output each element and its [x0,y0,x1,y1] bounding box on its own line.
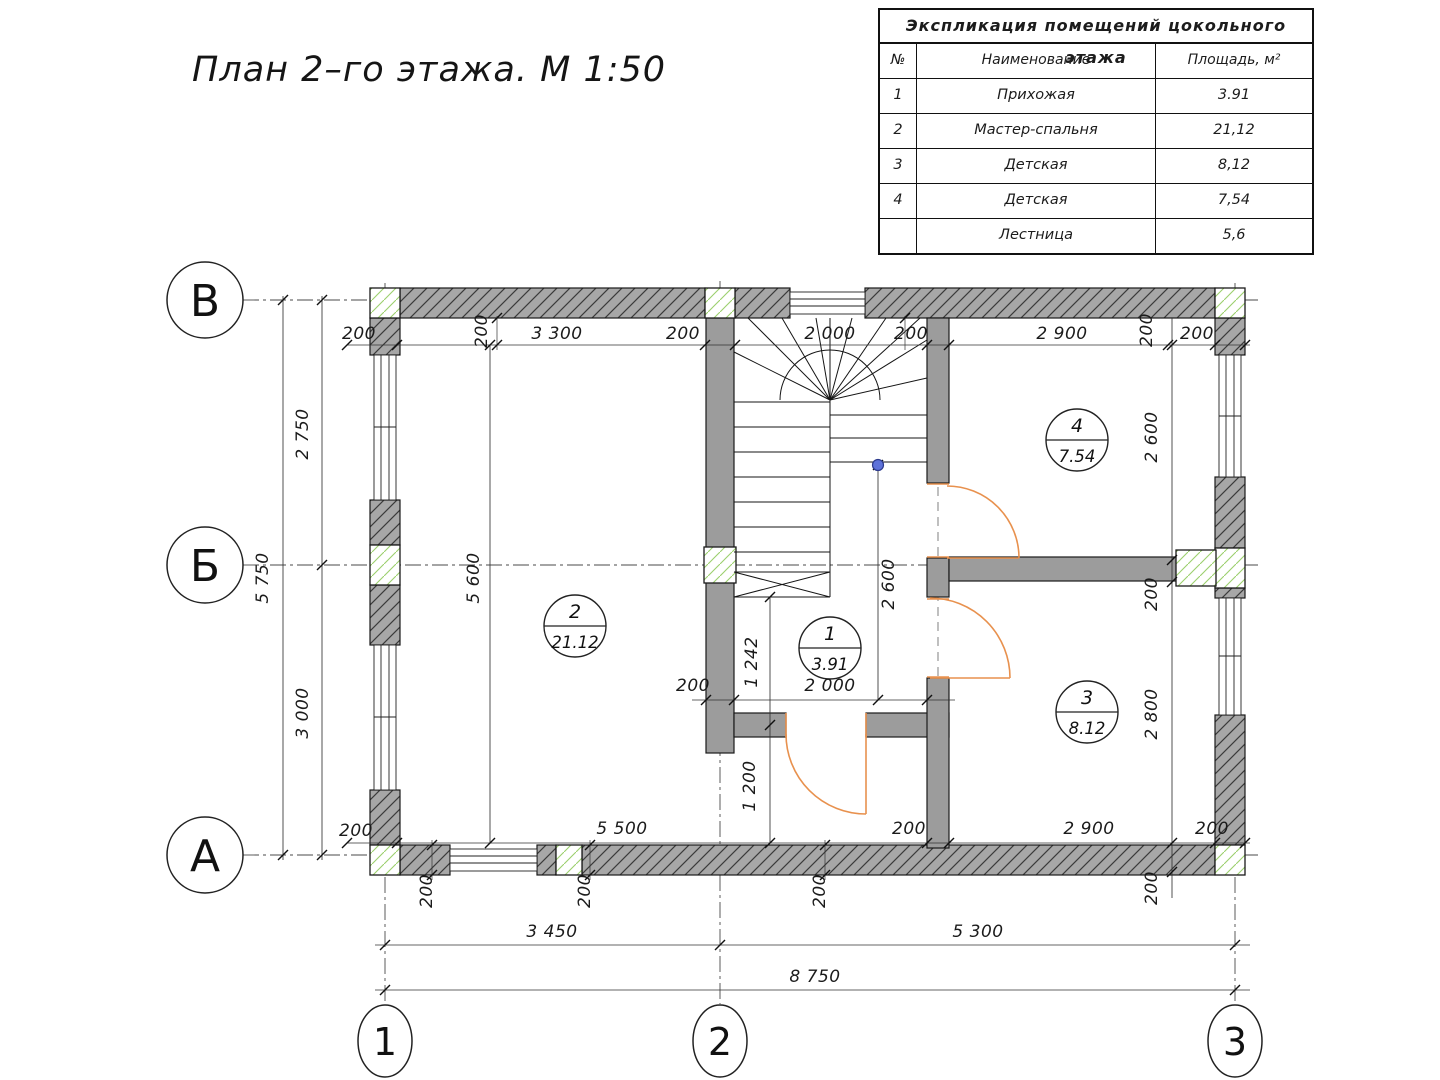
dim-label: 200 [1137,313,1157,347]
room-area: 21.12 [551,633,598,652]
room-stamp-4: 47.54 [1046,409,1108,471]
table-cell: Лестница [916,219,1155,253]
doors [786,484,1019,814]
axis-label: 3 [1223,1020,1247,1064]
room-area: 8.12 [1069,719,1106,738]
dim-label: 2 000 [804,324,855,344]
table-cell: 4 [880,184,916,218]
table-row: 4Детская7,54 [880,183,1312,218]
table-header-cell: Наименование [916,44,1155,78]
dim-label: 200 [810,874,830,908]
axis-marker-В: В [167,262,243,338]
table-row: 2Мастер-спальня21,12 [880,113,1312,148]
table-cell: 3.91 [1155,79,1312,113]
dim-label: 1 200 [740,760,760,811]
axis-marker-А: А [167,817,243,893]
dim-label: 200 [894,324,928,344]
dim-label: 200 [892,819,926,839]
dim-label: 2 600 [879,558,899,609]
dim-label: 200 [417,874,437,908]
dim-label: 5 600 [464,552,484,603]
dim-label: 5 500 [596,819,647,839]
dim-label: 200 [1142,871,1162,905]
dim-label: 3 000 [293,687,313,738]
table-header-cell: № [880,44,916,78]
dim-label: 200 [472,314,492,348]
window-top [790,292,865,314]
axis-label: 1 [373,1020,397,1064]
dim-label: 3 300 [531,324,582,344]
window-right-upper [1219,355,1241,477]
explication-table-body: №НаименованиеПлощадь, м²1Прихожая3.912Ма… [880,44,1312,253]
dim-label: 200 [666,324,700,344]
room-stamp-3: 38.12 [1056,681,1118,743]
table-row: 1Прихожая3.91 [880,78,1312,113]
dim-label: 2 900 [1036,324,1087,344]
room-area: 7.54 [1059,447,1096,466]
table-cell: Детская [916,184,1155,218]
dim-label: 200 [342,324,376,344]
table-row: Лестница5,6 [880,218,1312,253]
dim-label: 1 242 [742,636,762,687]
dim-label: 8 750 [789,967,840,987]
axis-marker-3: 3 [1208,1005,1262,1077]
window-left-upper [374,355,396,500]
table-cell: 3 [880,149,916,183]
table-header-cell: Площадь, м² [1155,44,1312,78]
dim-label: 2 000 [804,676,855,696]
dim-label: 5 750 [253,552,273,603]
room-area: 3.91 [812,655,849,674]
axis-label: 2 [708,1020,732,1064]
dim-label: 2 600 [1142,411,1162,462]
staircase [734,318,927,597]
table-cell: 21,12 [1155,114,1312,148]
table-cell [880,219,916,253]
dim-label: 200 [1142,577,1162,611]
axis-marker-Б: Б [167,527,243,603]
room-number: 1 [824,623,836,645]
axis-marker-1: 1 [358,1005,412,1077]
axis-label: Б [190,541,220,592]
dim-label: 2 750 [293,408,313,459]
table-row: 3Детская8,12 [880,148,1312,183]
dim-label: 200 [339,821,373,841]
door-room4 [927,484,1019,558]
dim-label: 2 900 [1063,819,1114,839]
window-left-lower [374,645,396,790]
axis-label: А [190,831,220,882]
table-cell: 2 [880,114,916,148]
table-cell: 1 [880,79,916,113]
room-number: 4 [1071,415,1083,437]
dim-label: 3 450 [526,922,577,942]
window-right-lower [1219,598,1241,715]
dim-label: 200 [1180,324,1214,344]
explication-table: Экспликация помещений цокольного этажа №… [878,8,1314,255]
room-number: 2 [569,601,581,623]
table-cell: Прихожая [916,79,1155,113]
axis-marker-2: 2 [693,1005,747,1077]
page-title: План 2–го этажа. М 1:50 [192,50,752,90]
floor-plan-sheet: План 2–го этажа. М 1:50 Экспликация поме… [0,0,1440,1080]
dim-label: 200 [1195,819,1229,839]
table-cell: Детская [916,149,1155,183]
dim-label: 200 [575,874,595,908]
room-stamp-1: 13.91 [799,617,861,679]
window-bottom [450,849,537,871]
table-header-row: №НаименованиеПлощадь, м² [880,44,1312,78]
room-number: 3 [1081,687,1093,709]
dim-label: 2 800 [1142,688,1162,739]
door-room3 [927,598,1010,678]
reference-point-marker[interactable] [873,460,884,471]
door-hall [786,713,866,814]
dim-label: 200 [676,676,710,696]
explication-table-title: Экспликация помещений цокольного этажа [880,10,1312,44]
table-cell: 5,6 [1155,219,1312,253]
table-cell: 7,54 [1155,184,1312,218]
dim-label: 5 300 [952,922,1003,942]
table-cell: Мастер-спальня [916,114,1155,148]
axis-label: В [190,276,220,327]
table-cell: 8,12 [1155,149,1312,183]
interior-walls [706,318,1215,848]
room-stamp-2: 221.12 [544,595,606,657]
